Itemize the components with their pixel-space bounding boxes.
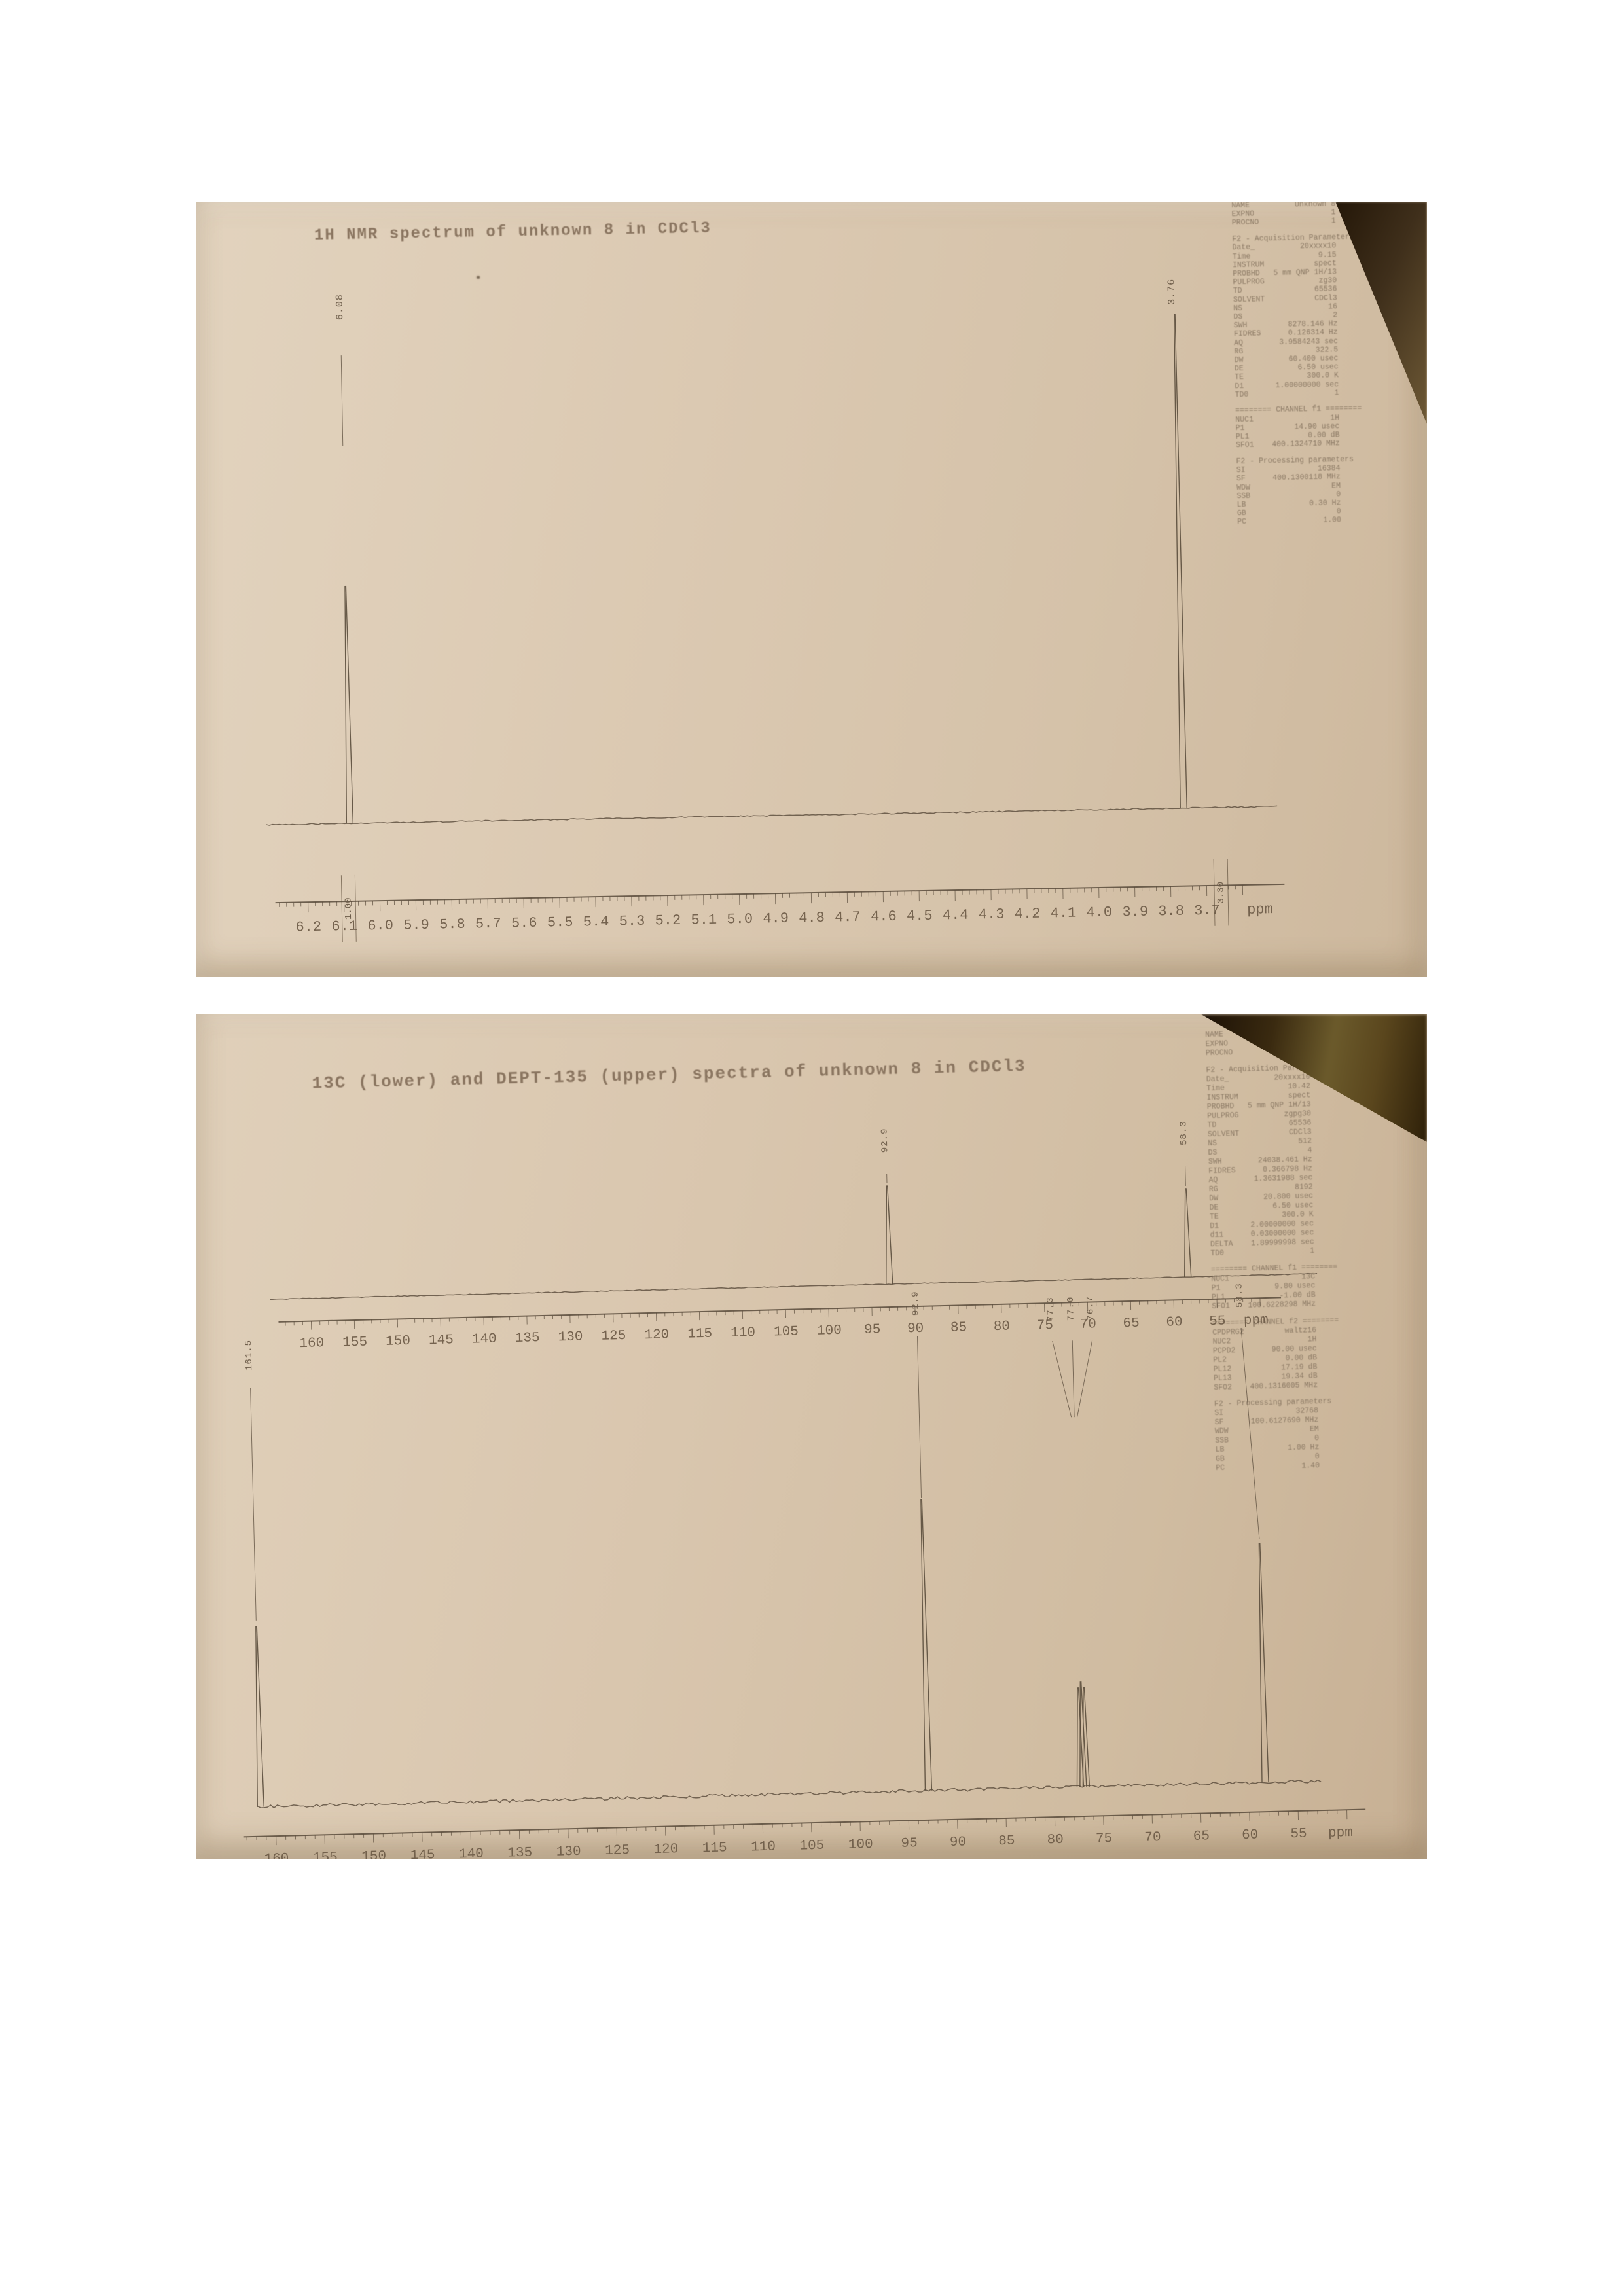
axis-tick-label: 75 — [1096, 1831, 1113, 1847]
speck-artifact — [477, 276, 480, 279]
axis-tick-label: 4.2 — [1015, 906, 1041, 923]
axis-tick-label: 5.8 — [439, 916, 465, 933]
peak — [1182, 1189, 1191, 1277]
axis-tick-label: 145 — [410, 1848, 435, 1859]
axis-tick-label: 5.1 — [691, 912, 717, 929]
spectrum-trace — [266, 806, 1277, 825]
peak — [253, 1626, 264, 1807]
peak-label-line — [1053, 1340, 1072, 1418]
axis-tick-label: 3.7 — [1194, 903, 1220, 920]
peak-label-line — [1185, 1166, 1186, 1186]
axis-tick-label: 5.0 — [727, 911, 753, 928]
peak-label-line — [251, 1388, 257, 1621]
axis-tick-label: 155 — [313, 1850, 338, 1859]
axis-tick-label: 145 — [429, 1333, 454, 1348]
peak-label-line — [917, 1336, 921, 1498]
spectrum-13c-canvas: 1601551501451401351301251201151101051009… — [196, 1014, 1427, 1859]
axis-tick-label: 160 — [299, 1336, 324, 1352]
axis-unit-label: ppm — [1247, 901, 1273, 918]
photo-1h-nmr: 1H NMR spectrum of unknown 8 in CDCl3 NA… — [196, 202, 1427, 977]
axis-tick-label: 80 — [994, 1319, 1011, 1335]
axis-tick-label: 3.9 — [1122, 904, 1148, 921]
axis-tick-label: 125 — [605, 1843, 630, 1859]
axis-line — [276, 884, 1285, 903]
axis-tick-label: 95 — [901, 1836, 918, 1852]
peak — [1256, 1543, 1269, 1782]
peak — [918, 1499, 932, 1791]
axis-tick-label: 5.9 — [403, 917, 429, 934]
axis-tick-label: 4.0 — [1086, 905, 1112, 922]
axis-tick-label: 150 — [361, 1849, 386, 1859]
peak — [884, 1186, 893, 1284]
axis-tick-label: 130 — [558, 1329, 583, 1345]
axis-tick-label: 115 — [702, 1840, 727, 1856]
axis-tick-label: 135 — [515, 1331, 540, 1346]
axis-tick-label: 70 — [1144, 1830, 1161, 1846]
spectrum-1h-canvas: 6.26.16.05.95.85.75.65.55.45.35.25.15.04… — [196, 202, 1427, 977]
paper-1h: 1H NMR spectrum of unknown 8 in CDCl3 NA… — [196, 202, 1427, 977]
axis-unit-label: ppm — [1244, 1313, 1269, 1329]
axis-tick-label: 3.8 — [1158, 903, 1184, 920]
axis-tick-label: 160 — [264, 1852, 289, 1859]
axis-tick-label: 65 — [1193, 1829, 1210, 1844]
axis-tick-label: 5.2 — [655, 912, 681, 929]
axis-tick-label: 95 — [864, 1322, 881, 1338]
axis-tick-label: 85 — [998, 1834, 1015, 1850]
paper-13c: 13C (lower) and DEPT-135 (upper) spectra… — [196, 1014, 1427, 1859]
axis-tick-label: 60 — [1242, 1828, 1259, 1844]
peak-label-line — [1241, 1327, 1259, 1539]
peak-label-line — [1072, 1340, 1074, 1417]
axis-tick-label: 110 — [731, 1325, 755, 1341]
axis-tick-label: 70 — [1079, 1317, 1096, 1333]
axis-tick-label: 105 — [774, 1324, 799, 1340]
axis-tick-label: 6.1 — [331, 918, 357, 935]
axis-tick-label: 65 — [1123, 1316, 1140, 1332]
axis-tick-label: 5.5 — [547, 914, 573, 931]
axis-tick-label: 140 — [472, 1332, 497, 1348]
axis-tick-label: 5.3 — [619, 913, 645, 930]
nmr-report-page: 1H NMR spectrum of unknown 8 in CDCl3 NA… — [0, 0, 1624, 2296]
axis-tick-label: 6.0 — [367, 918, 393, 935]
axis-tick-label: 5.4 — [583, 914, 609, 931]
axis-tick-label: 90 — [907, 1321, 924, 1337]
axis-tick-label: 120 — [653, 1842, 678, 1857]
peak-label-line — [341, 355, 343, 446]
axis-tick-label: 105 — [799, 1839, 824, 1854]
axis-tick-label: 100 — [817, 1323, 842, 1339]
axis-tick-label: 135 — [507, 1846, 532, 1859]
spectrum-trace — [270, 1273, 1318, 1299]
spectrum-trace — [258, 1780, 1322, 1809]
axis-tick-label: 100 — [848, 1837, 873, 1853]
axis-tick-label: 150 — [386, 1334, 410, 1350]
axis-tick-label: 85 — [950, 1320, 967, 1336]
axis-tick-label: 4.7 — [835, 909, 861, 926]
axis-tick-label: 4.3 — [979, 906, 1005, 924]
axis-tick-label: 6.2 — [295, 919, 321, 936]
axis-tick-label: 75 — [1036, 1318, 1053, 1334]
peak — [342, 586, 353, 824]
axis-tick-label: 155 — [342, 1335, 367, 1351]
axis-tick-label: 140 — [459, 1846, 484, 1859]
axis-tick-label: 55 — [1209, 1314, 1226, 1329]
axis-tick-label: 5.6 — [511, 915, 537, 932]
axis-tick-label: 4.1 — [1050, 905, 1076, 922]
axis-tick-label: 55 — [1290, 1827, 1307, 1842]
photo-13c-dept: 13C (lower) and DEPT-135 (upper) spectra… — [196, 1014, 1427, 1859]
peak-label-line — [1075, 1340, 1094, 1417]
axis-tick-label: 90 — [950, 1835, 967, 1850]
axis-tick-label: 5.7 — [475, 916, 501, 933]
axis-tick-label: 130 — [556, 1844, 581, 1859]
axis-tick-label: 60 — [1166, 1315, 1183, 1331]
axis-tick-label: 4.5 — [907, 908, 933, 925]
axis-tick-label: 110 — [751, 1840, 776, 1856]
peak — [1171, 314, 1187, 808]
axis-tick-label: 4.4 — [943, 907, 969, 924]
axis-tick-label: 80 — [1047, 1833, 1064, 1848]
axis-tick-label: 125 — [601, 1329, 626, 1344]
axis-tick-label: 4.8 — [799, 910, 825, 927]
axis-tick-label: 120 — [644, 1327, 669, 1343]
axis-tick-label: 115 — [687, 1327, 712, 1342]
axis-tick-label: 4.9 — [763, 910, 789, 927]
axis-unit-label: ppm — [1328, 1825, 1353, 1841]
axis-tick-label: 4.6 — [871, 908, 897, 925]
